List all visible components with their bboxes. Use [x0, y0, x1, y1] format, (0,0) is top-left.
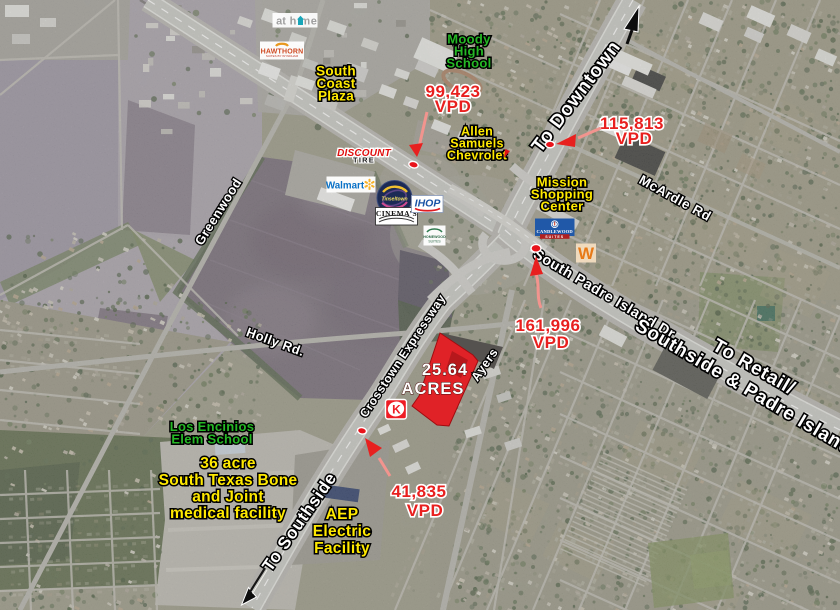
- svg-text:CINEMA’S: CINEMA’S: [376, 209, 417, 218]
- svg-text:Chevrolet: Chevrolet: [447, 149, 508, 163]
- svg-text:41,835: 41,835: [392, 482, 447, 501]
- svg-text:Facility: Facility: [314, 540, 370, 557]
- svg-text:Tinseltown: Tinseltown: [381, 197, 407, 203]
- svg-text:h me: h me: [290, 16, 318, 28]
- svg-text:and Joint: and Joint: [192, 489, 264, 506]
- svg-text:VPD: VPD: [407, 501, 443, 520]
- svg-text:CANDLEWOOD: CANDLEWOOD: [536, 229, 573, 234]
- svg-text:25.64: 25.64: [422, 361, 468, 379]
- svg-text:W: W: [578, 244, 595, 263]
- svg-text:VPD: VPD: [616, 129, 652, 148]
- svg-text:School: School: [446, 56, 491, 71]
- svg-text:Electric: Electric: [313, 523, 371, 540]
- svg-text:SUITES: SUITES: [545, 235, 564, 239]
- svg-text:K: K: [392, 403, 401, 417]
- svg-text:36 acre: 36 acre: [200, 455, 256, 472]
- svg-text:VPD: VPD: [435, 97, 471, 116]
- svg-text:at: at: [276, 16, 286, 28]
- svg-text:SUITES: SUITES: [428, 240, 441, 244]
- svg-text:ACRES: ACRES: [402, 380, 465, 398]
- svg-text:VPD: VPD: [533, 333, 569, 352]
- svg-text:HOMEWOOD: HOMEWOOD: [423, 235, 446, 239]
- svg-text:South Texas Bone: South Texas Bone: [159, 472, 298, 489]
- svg-text:Elem School: Elem School: [171, 432, 252, 447]
- svg-text:AEP: AEP: [326, 506, 359, 523]
- svg-text:Walmart: Walmart: [326, 181, 365, 192]
- svg-text:Center: Center: [541, 199, 584, 214]
- svg-text:medical facility: medical facility: [170, 505, 286, 522]
- svg-text:Plaza: Plaza: [318, 89, 354, 104]
- svg-text:TIRE: TIRE: [353, 156, 375, 165]
- svg-text:SUITES BY WYNDHAM: SUITES BY WYNDHAM: [266, 54, 299, 58]
- svg-text:IHOP: IHOP: [415, 198, 442, 210]
